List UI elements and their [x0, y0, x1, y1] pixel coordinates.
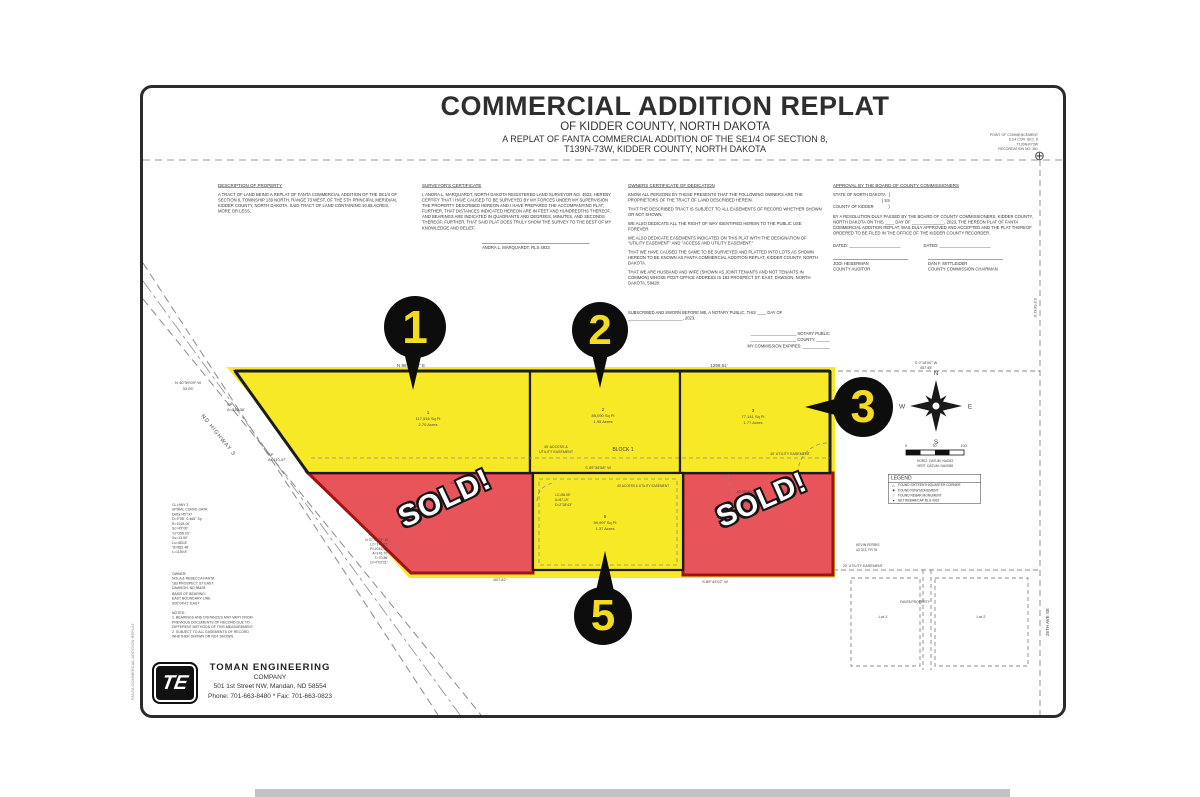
company-phone: Phone: 701-663-8480 * Fax: 701-663-0823 [208, 692, 332, 701]
svg-text:D=2°28'43": D=2°28'43" [555, 503, 573, 507]
scan-edge-strip [255, 789, 1010, 797]
tie-dist-label: 33.05' [183, 386, 194, 391]
curve-data-left-of-lot: N 37°00'22" W LC=141.67' R=2016.00' A=14… [328, 538, 448, 593]
svg-text:A=87.19': A=87.19' [555, 498, 569, 502]
legend-item-label: FOUND SIXTEENTH/QUARTER CORNER [898, 484, 960, 488]
dated-left: DATED: ______________________ [833, 243, 900, 248]
unplatted-owner-label-2: 43 372, FR 91 [856, 548, 878, 552]
scale-100: 100' [961, 444, 968, 448]
page-subtitle-1: OF KIDDER COUNTY, NORTH DAKOTA [360, 121, 970, 133]
lot-3-marker[interactable]: 3 [833, 377, 893, 437]
svg-text:1.95 Acres: 1.95 Acres [594, 419, 613, 424]
owners-p4: WE ALSO DEDICATE EASEMENTS INDICATED ON … [628, 235, 823, 246]
datum-horiz: HORIZ. DATUM: NAD83 [917, 459, 953, 463]
scale-bar: 0 50' 100' HORIZ. DATUM: NAD83 VERT. DAT… [905, 444, 968, 468]
owners-p1: KNOW ALL PERSONS BY THESE PRESENTS THAT … [628, 192, 823, 203]
svg-text:59,997 Sq Ft: 59,997 Sq Ft [594, 520, 618, 525]
open-circle-monument-icon: ○ [891, 494, 896, 498]
plat-document-page: { "title": { "main": "COMMERCIAL ADDITIO… [0, 0, 1200, 797]
sheet-edge-label: FANTA COMMERCIAL ADDITION REPLAT [130, 540, 135, 700]
lot-1-marker[interactable]: 1 [384, 296, 446, 358]
legend-item-label: FOUND ROW MONUMENT [898, 489, 938, 493]
owners-p3: WE ALSO DEDICATE ALL THE RIGHT OF WAY ID… [628, 221, 823, 232]
company-address: 501 1st Street NW, Mandan, ND 58554 [208, 682, 332, 691]
description-body: A TRACT OF LAND BEING A REPLAT OF FANTA … [218, 192, 398, 214]
page-title: COMMERCIAL ADDITION REPLAT [360, 91, 970, 122]
surveyor-heading: SURVEYOR'S CERTIFICATE [422, 183, 612, 188]
description-heading: DESCRIPTION OF PROPERTY [218, 183, 398, 188]
spiral-curve-text: CL HWY 3 SPIRAL CURVE DATA: Delta=45°00'… [172, 503, 247, 555]
page-subtitle-3: T139N-73W, KIDDER COUNTY, NORTH DAKOTA [360, 144, 970, 154]
marker-5-pointer [596, 551, 614, 591]
svg-text:85,090 Sq Ft: 85,090 Sq Ft [592, 413, 616, 418]
datum-vert: VERT. DATUM: NAVD88 [917, 464, 953, 468]
legend-item-label: SET REBAR/CAP RLS 4933 [898, 499, 939, 503]
svg-text:1.37 Acres: 1.37 Acres [596, 526, 615, 531]
approval-dated-row: DATED: ______________________ DATED: ___… [833, 243, 1043, 248]
bearing-bottom-label: S 89°44'02" W [702, 579, 728, 584]
east-lot1-label: Lot 1 [879, 614, 889, 619]
ave-label: 26TH AVE SE [1045, 608, 1050, 636]
compass-w: W [899, 404, 906, 411]
notes-block: NOTES: 1. BEARINGS AND DISTANCES MAY VAR… [172, 611, 472, 668]
row-bearing-label: S 89°38'58" W [585, 465, 611, 470]
marker-2-pointer [592, 354, 608, 388]
legend-title: LEGEND [889, 475, 981, 483]
owners-p6: THAT WE ARE HUSBAND AND WIFE (SHOWN AS J… [628, 270, 823, 286]
tie-bearing-label: N 40°59'09" W [175, 380, 201, 385]
highway-label: ND HIGHWAY 3 [199, 413, 236, 457]
lot-2-marker[interactable]: 2 [572, 302, 628, 358]
lot5-easement-label: 40' ACCESS & UTILITY EASEMENT [617, 484, 669, 488]
esmt20-label: 20' UTILITY EASEMENT [843, 564, 884, 568]
block-label: BLOCK 1 [612, 447, 633, 453]
poc-line-4: RECORDATION NO. 381 [950, 147, 1038, 152]
svg-text:117,516 Sq Ft: 117,516 Sq Ft [416, 416, 442, 421]
approval-state-block: STATE OF NORTH DAKOTA ) ) SS COUNTY OF K… [833, 192, 1043, 210]
svg-text:1: 1 [427, 410, 430, 415]
quarter-corner-icon: ⊕ [1034, 148, 1045, 164]
owners-p2: THAT THE DESCRIBED TRACT IS SUBJECT TO A… [628, 206, 823, 217]
notes-text: NOTES: 1. BEARINGS AND DISTANCES MAY VAR… [172, 611, 322, 639]
legend-item-label: FOUND REBAR MONUMENT [898, 494, 942, 498]
notary-right-text: ____________________ NOTARY PUBLIC _____… [690, 331, 830, 349]
approval-names-row: JODI HEISERMAN COUNTY AUDITOR DAN F. MIT… [833, 259, 1043, 272]
access-easement-label-2: UTILITY EASEMENT [539, 450, 574, 454]
dated-right: DATED: ______________________ [923, 243, 990, 248]
svg-text:1.77 Acres: 1.77 Acres [744, 420, 763, 425]
scale-0: 0 [905, 444, 907, 448]
access-easement-label-1: 40' ACCESS & [544, 445, 568, 449]
basis-text: BASIS OF BEARING: EAST BOUNDARY LINE S00… [172, 592, 262, 606]
company-name: TOMAN ENGINEERING [208, 662, 332, 673]
toman-engineering-logo: TE [152, 662, 198, 704]
chairman-cell: DAN F. MITTLEIDER COUNTY COMMISSION CHAI… [928, 259, 1003, 272]
notary-text: SUBSCRIBED AND SWORN BEFORE ME, A NOTARY… [628, 310, 818, 321]
approval-body: BY A RESOLUTION DULY PASSED BY THE BOARD… [833, 214, 1043, 236]
owners-heading: OWNERS CERTIFICATE OF DEDICATION [628, 183, 823, 188]
legend: LEGEND △ FOUND SIXTEENTH/QUARTER CORNER … [888, 474, 1074, 533]
east-lot2-label: Lot 2 [977, 614, 987, 619]
chairman-role: COUNTY COMMISSION CHAIRMAN [928, 267, 1003, 273]
auditor-cell: JODI HEISERMAN COUNTY AUDITOR [833, 259, 908, 272]
surveyor-signature: ANDRA L. MARQUARDT, RLS 4933 [482, 243, 590, 250]
square-monument-icon: ■ [891, 489, 896, 493]
lot-5-marker[interactable]: 5 [574, 587, 632, 645]
logo-letters: TE [160, 672, 190, 695]
dim-bottom-label: 807.82' [494, 577, 507, 582]
surveyor-body: I, ANDRA L. MARQUARDT, NORTH DAKOTA REGI… [422, 192, 612, 231]
svg-text:2.70 Acres: 2.70 Acres [419, 422, 438, 427]
fanta-property-label: FANTA PROPERTY [900, 600, 931, 604]
filled-circle-rebar-icon: ● [891, 499, 896, 503]
scale-50: 50' [933, 444, 938, 448]
utility-easement-label: 40' UTILITY EASEMENT [770, 452, 811, 456]
company-block: TE TOMAN ENGINEERING COMPANY 501 1st Str… [152, 662, 332, 704]
svg-text:5: 5 [604, 514, 607, 519]
owner-text: OWNER: NOLA & REBECCA FANTA 183 PROSPECT… [172, 572, 262, 591]
spiral-label-1b: A=536.36' [227, 407, 245, 412]
svg-text:2: 2 [602, 407, 605, 412]
spiral-label-2b: A=410.47' [268, 457, 286, 462]
auditor-role: COUNTY AUDITOR [833, 267, 908, 273]
triangle-corner-icon: △ [891, 483, 896, 487]
unplatted-owner-label-1: KEVIN FERRIS [856, 543, 880, 547]
approval-heading: APPROVAL BY THE BOARD OF COUNTY COMMISSI… [833, 183, 1043, 188]
approval-certificate: APPROVAL BY THE BOARD OF COUNTY COMMISSI… [833, 183, 1200, 362]
company-name-2: COMPANY [208, 673, 332, 682]
svg-text:LC=86.55': LC=86.55' [555, 493, 571, 497]
svg-text:77,141 Sq Ft: 77,141 Sq Ft [742, 414, 766, 419]
page-subtitle-2: A REPLAT OF FANTA COMMERCIAL ADDITION OF… [360, 134, 970, 144]
owners-p5: THAT WE HAVE CAUSED THE SAME TO BE SURVE… [628, 250, 823, 266]
svg-text:3: 3 [752, 408, 755, 413]
compass-e: E [968, 404, 973, 411]
legend-item: ● SET REBAR/CAP RLS 4933 [889, 498, 981, 503]
